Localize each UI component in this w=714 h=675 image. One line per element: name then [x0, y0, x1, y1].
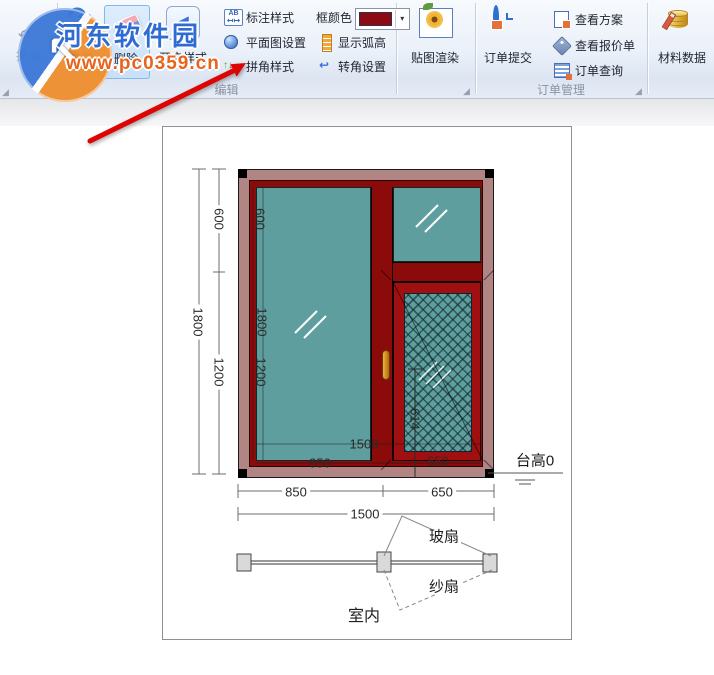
- view-plan-button[interactable]: 查看方案: [552, 11, 644, 29]
- view-quote-label: 查看报价单: [575, 39, 635, 53]
- eraser-icon: [112, 13, 141, 36]
- arrow-right-icon: →: [233, 60, 243, 71]
- ribbon: ↶ 撤消 ◢ ↷ 重做 删除 ◀ 开启样式 AB↤↦ 标注样式 平面图设置 ↑↓…: [0, 0, 714, 99]
- undo-button[interactable]: ↶ 撤消: [4, 24, 52, 64]
- document-icon: [554, 11, 569, 28]
- dim-style-button[interactable]: AB↤↦ 标注样式: [222, 8, 312, 28]
- drawing-canvas[interactable]: 1800 600 1200 600 1800 1200 614 1500 850…: [162, 126, 572, 640]
- open-style-button[interactable]: ◀ 开启样式: [150, 2, 216, 78]
- dialog-launcher-icon[interactable]: ◢: [635, 87, 642, 96]
- delete-label: 删除: [105, 53, 147, 66]
- corner-style-icon: ↑↓→: [223, 58, 241, 73]
- plan-settings-label: 平面图设置: [246, 36, 306, 50]
- corner-style-button[interactable]: ↑↓→ 拼角样式: [222, 57, 312, 77]
- render-button[interactable]: 贴图渲染: [399, 2, 471, 80]
- order-submit-button[interactable]: 订单提交: [478, 2, 538, 80]
- plan-settings-icon: [224, 35, 238, 49]
- corner-settings-label: 转角设置: [338, 60, 386, 74]
- app-window: ↶ 撤消 ◢ ↷ 重做 删除 ◀ 开启样式 AB↤↦ 标注样式 平面图设置 ↑↓…: [0, 0, 714, 675]
- ruler-icon: [322, 34, 332, 52]
- dim-style-icon-arrows: ↤↦: [225, 18, 242, 24]
- redo-icon: ↷: [67, 4, 92, 34]
- frame-color-swatch: [359, 12, 392, 26]
- dim-width-total: 1500: [348, 508, 383, 521]
- corner-style-label: 拼角样式: [246, 60, 294, 74]
- dim-width-left: 850: [282, 486, 310, 499]
- dim-style-icon: AB↤↦: [224, 9, 243, 26]
- corner-settings-icon: ↩: [319, 58, 335, 73]
- corner-settings-button[interactable]: ↩ 转角设置: [318, 57, 402, 77]
- dim-mesh-height: 614: [409, 408, 422, 430]
- open-style-label: 开启样式: [150, 52, 216, 65]
- plan-settings-button[interactable]: 平面图设置: [222, 33, 322, 53]
- clock-submit-icon: [493, 5, 499, 28]
- price-tag-icon: [552, 36, 572, 56]
- redo-button[interactable]: ↷ 重做: [59, 2, 103, 78]
- undo-label: 撤消: [6, 50, 50, 63]
- frame-color-label: 框颜色: [316, 11, 352, 25]
- group-label-order: 订单管理: [475, 84, 647, 97]
- render-label: 贴图渲染: [399, 52, 471, 65]
- platform-height-label: 台高0: [516, 454, 554, 469]
- dim-inner-width-right: 650: [427, 455, 449, 468]
- view-quote-button[interactable]: 查看报价单: [552, 37, 654, 55]
- order-submit-label: 订单提交: [478, 52, 538, 65]
- order-query-label: 订单查询: [575, 64, 623, 78]
- dim-inner-height-bottom: 1200: [255, 358, 268, 387]
- dim-style-label: 标注样式: [246, 11, 294, 25]
- redo-label: 重做: [59, 52, 103, 65]
- view-plan-label: 查看方案: [575, 13, 623, 27]
- order-query-button[interactable]: 订单查询: [552, 62, 644, 80]
- show-arc-label: 显示弧高: [338, 36, 386, 50]
- group-separator: [57, 3, 58, 94]
- ribbon-shadow-strip: [0, 99, 714, 126]
- material-data-label: 材料数据: [650, 52, 714, 65]
- undo-icon: ↶: [18, 28, 31, 43]
- picture-sunflower-icon: [419, 8, 453, 38]
- dialog-launcher-icon[interactable]: ◢: [2, 88, 9, 97]
- dim-inner-height-top: 600: [254, 208, 267, 230]
- dim-inner-width-left: 850: [309, 457, 331, 470]
- show-arc-button[interactable]: 显示弧高: [320, 33, 400, 53]
- screen-sash-label: 纱扇: [427, 580, 461, 595]
- material-data-button[interactable]: 材料数据: [650, 2, 714, 80]
- stacked-sheets-icon: [554, 63, 570, 78]
- dim-height-total: 1800: [192, 305, 205, 340]
- group-label-edit: 编辑: [57, 84, 396, 97]
- open-style-icon: ◀: [166, 6, 200, 40]
- dialog-launcher-icon[interactable]: ◢: [463, 87, 470, 96]
- delete-button[interactable]: 删除: [104, 5, 150, 79]
- dim-height-bottom: 1200: [213, 355, 226, 390]
- dim-width-right: 650: [428, 486, 456, 499]
- dim-inner-width-total: 1500: [350, 438, 379, 451]
- indoor-label: 室内: [348, 609, 380, 625]
- dim-height-top: 600: [213, 205, 226, 233]
- glass-sash-label: 玻扇: [427, 530, 461, 545]
- group-separator: [475, 3, 476, 94]
- dim-inner-height-total: 1800: [256, 308, 269, 337]
